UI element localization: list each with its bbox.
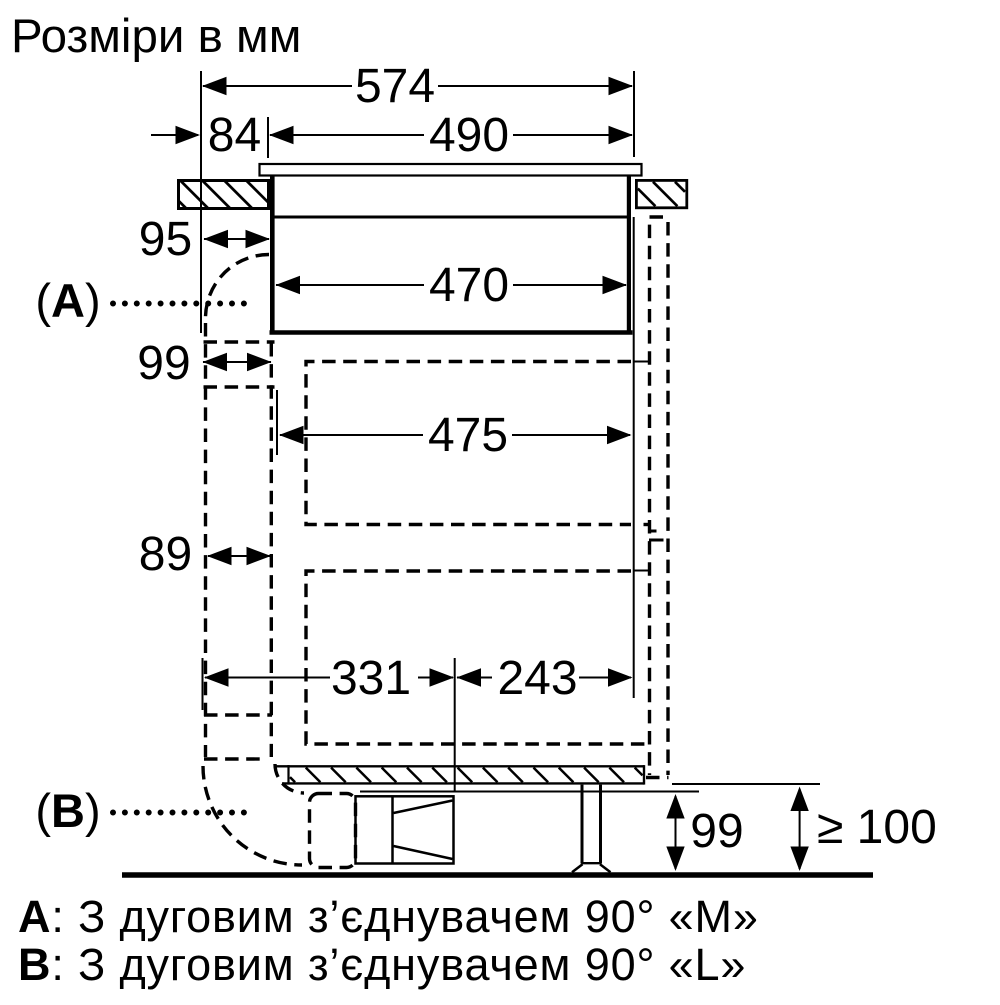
svg-text:84: 84 <box>208 109 261 162</box>
svg-text:490: 490 <box>429 109 509 162</box>
svg-text:Розміри в мм: Розміри в мм <box>11 10 301 63</box>
svg-text:A: З дуговим з’єднувачем 90° «: A: З дуговим з’єднувачем 90° «М» <box>18 891 759 942</box>
svg-text:470: 470 <box>429 259 509 312</box>
svg-text:574: 574 <box>355 60 435 113</box>
svg-text:331: 331 <box>331 652 411 705</box>
svg-text:243: 243 <box>497 652 577 705</box>
svg-text:99: 99 <box>690 805 743 858</box>
svg-text:95: 95 <box>139 213 192 266</box>
svg-text:(B): (B) <box>35 784 100 837</box>
svg-text:(A): (A) <box>35 274 100 327</box>
svg-text:≥ 100: ≥ 100 <box>817 801 937 854</box>
svg-text:89: 89 <box>139 528 192 581</box>
svg-text:99: 99 <box>137 337 190 390</box>
svg-text:B: З дуговим з’єднувачем 90° «: B: З дуговим з’єднувачем 90° «L» <box>18 939 746 990</box>
svg-text:475: 475 <box>428 409 508 462</box>
